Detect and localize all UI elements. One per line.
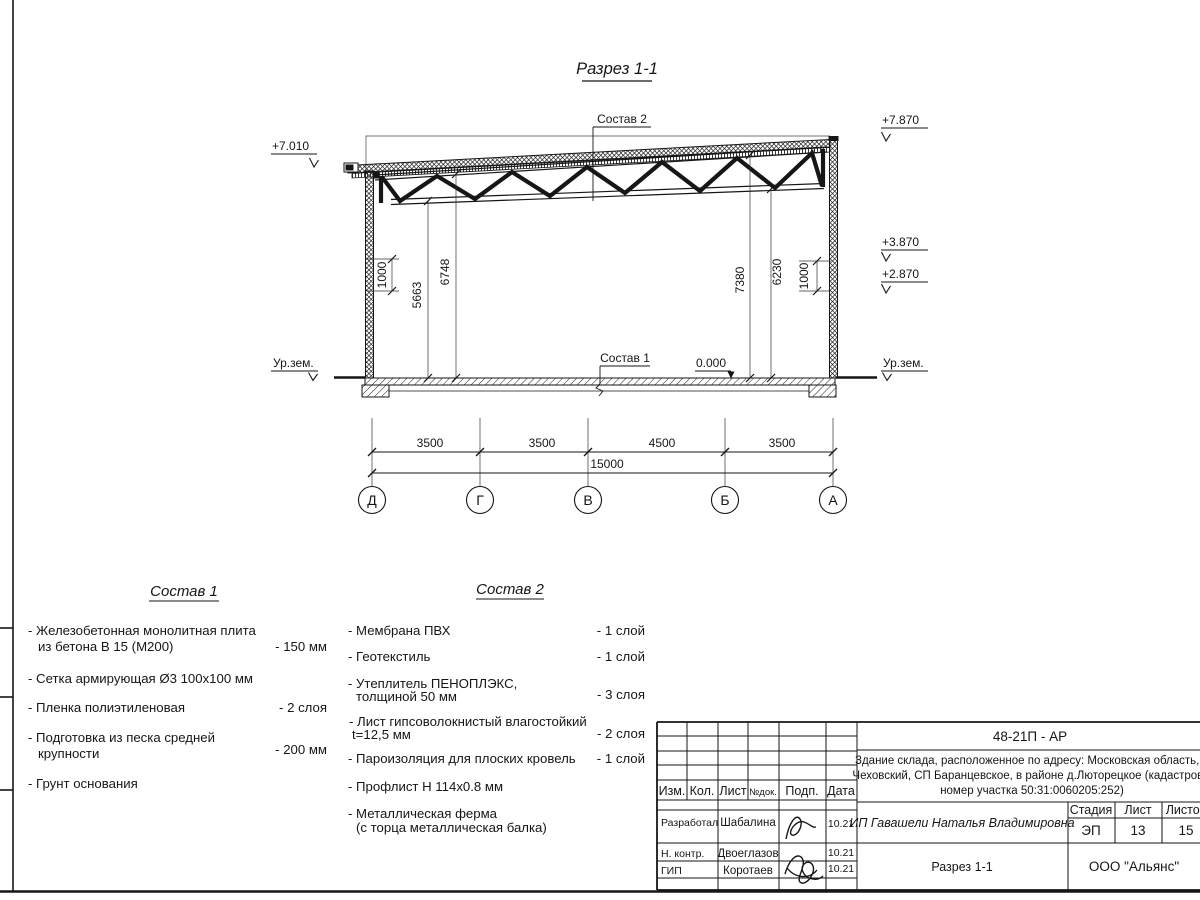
stage-value: ЭП	[1081, 823, 1100, 838]
list-item-value: - 2 слоя	[279, 700, 327, 715]
list-item: толщиной 50 мм	[356, 689, 457, 704]
client-name: ИП Гавашели Наталья Владимировна	[849, 816, 1074, 830]
dim-7380: 7380	[733, 266, 747, 293]
list-item: из бетона В 15 (М200)	[38, 639, 173, 654]
wall-left	[366, 171, 374, 378]
list-item-value: - 1 слой	[597, 649, 645, 664]
sostav1-heading: Состав 1	[150, 583, 218, 600]
total-dim: 15000	[590, 457, 624, 471]
drawing-sheet: Разрез 1-1	[0, 0, 1200, 900]
role-gip: ГИП	[661, 865, 682, 877]
list-item: - Пленка полиэтиленовая	[28, 700, 185, 715]
list-item: - Пароизоляция для плоских кровель	[348, 751, 576, 766]
axis-label-g: Г	[476, 492, 484, 508]
list-item: - Профлист Н 114х0.8 мм	[348, 779, 503, 794]
sheets-label: Листов	[1166, 803, 1200, 817]
axis-label-d: Д	[367, 492, 377, 508]
dim-1000-left: 1000	[375, 261, 389, 288]
dim-6748: 6748	[438, 258, 452, 285]
list-item-value: - 200 мм	[275, 742, 327, 757]
leader-roof-label: Состав 2	[597, 112, 647, 126]
parapet-cap	[829, 136, 839, 141]
project-description-line1: Здание склада, расположенное по адресу: …	[855, 755, 1200, 767]
leader-floor-label: Состав 1	[600, 351, 650, 365]
section-drawing-svg: Разрез 1-1	[0, 0, 1200, 900]
elevation-right-lower: +2.870	[882, 267, 919, 281]
eave-tip-plate	[346, 165, 354, 171]
rev-header-ndok: №док.	[749, 787, 777, 798]
sheet-label: Лист	[1124, 803, 1151, 817]
vertical-dim-lines	[366, 155, 831, 378]
project-description-line2: Чеховский, СП Баранцевское, в районе д.Л…	[852, 770, 1200, 782]
wall-right	[830, 137, 838, 378]
list-item-value: - 3 слоя	[597, 687, 645, 702]
list-item-value: - 150 мм	[275, 639, 327, 654]
sostav2-list: Состав 2 - Мембрана ПВХ - 1 слой - Геоте…	[348, 581, 645, 835]
list-item-value: - 1 слой	[597, 751, 645, 766]
list-item: t=12,5 мм	[352, 727, 411, 742]
span-dim-1: 3500	[417, 436, 444, 450]
date-3: 10.21	[828, 863, 854, 875]
wall-left-bearing-plate	[373, 172, 380, 179]
signature-1	[786, 817, 816, 839]
elevation-right-upper: +3.870	[882, 235, 919, 249]
title-block: Изм. Кол. Лист №док. Подп. Дата Разработ…	[657, 722, 1200, 890]
list-item: - Мембрана ПВХ	[348, 623, 451, 638]
list-item: - Сетка армирующая Ø3 100х100 мм	[28, 671, 253, 686]
axis-bubbles: Д Г В Б А	[359, 487, 847, 514]
signature-2	[785, 856, 823, 883]
list-item: - Металлическая ферма	[348, 806, 498, 821]
rev-header-podp: Подп.	[785, 784, 818, 798]
list-item: крупности	[38, 746, 99, 761]
rev-header-list: Лист	[719, 784, 746, 798]
span-dim-3: 4500	[649, 436, 676, 450]
list-item: (с торца металлическая балка)	[356, 820, 547, 835]
drawing-name: Разрез 1-1	[931, 860, 992, 874]
company-name: ООО "Альянс"	[1089, 859, 1179, 874]
list-item-value: - 1 слой	[597, 623, 645, 638]
name-dvoeglazov: Двоеглазов	[717, 848, 778, 860]
axis-label-v: В	[583, 492, 592, 508]
zero-level-label: 0.000	[696, 356, 726, 370]
dim-6230: 6230	[770, 258, 784, 285]
zero-level-arrow	[728, 372, 735, 379]
dim-5663: 5663	[410, 281, 424, 308]
sheet-value: 13	[1130, 823, 1145, 838]
elevation-left-eave: +7.010	[272, 139, 309, 153]
list-item-value: - 2 слоя	[597, 726, 645, 741]
span-dim-4: 3500	[769, 436, 796, 450]
list-item: - Грунт основания	[28, 776, 138, 791]
date-2: 10.21	[828, 847, 854, 859]
axis-label-b: Б	[720, 492, 729, 508]
elevation-right-parapet: +7.870	[882, 113, 919, 127]
page-title: Разрез 1-1	[576, 60, 658, 78]
span-dim-2: 3500	[529, 436, 556, 450]
doc-number: 48-21П - АР	[993, 729, 1067, 744]
list-item: - Геотекстиль	[348, 649, 431, 664]
foundation-right	[809, 385, 836, 397]
name-korotaev: Коротаев	[723, 865, 773, 877]
list-item: - Железобетонная монолитная плита	[28, 623, 257, 638]
name-shabalina: Шабалина	[720, 817, 776, 829]
rev-header-kol: Кол.	[690, 784, 715, 798]
list-item: - Подготовка из песка средней	[28, 730, 215, 745]
sostav1-list: Состав 1 - Железобетонная монолитная пли…	[28, 583, 327, 791]
project-description-line3: номер участка 50:31:0060205:252)	[940, 785, 1124, 797]
foundation-left	[362, 385, 389, 397]
role-razrabotal: Разработал	[661, 817, 718, 829]
role-nkontr: Н. контр.	[661, 848, 704, 860]
rev-header-data: Дата	[827, 784, 855, 798]
ground-label-right: Ур.зем.	[883, 356, 924, 370]
sostav2-heading: Состав 2	[476, 581, 544, 598]
dim-1000-right: 1000	[797, 262, 811, 289]
rev-header-izm: Изм.	[659, 784, 686, 798]
axis-label-a: А	[828, 492, 838, 508]
stage-label: Стадия	[1070, 803, 1113, 817]
ground-label-left: Ур.зем.	[273, 356, 314, 370]
sheets-value: 15	[1178, 823, 1193, 838]
